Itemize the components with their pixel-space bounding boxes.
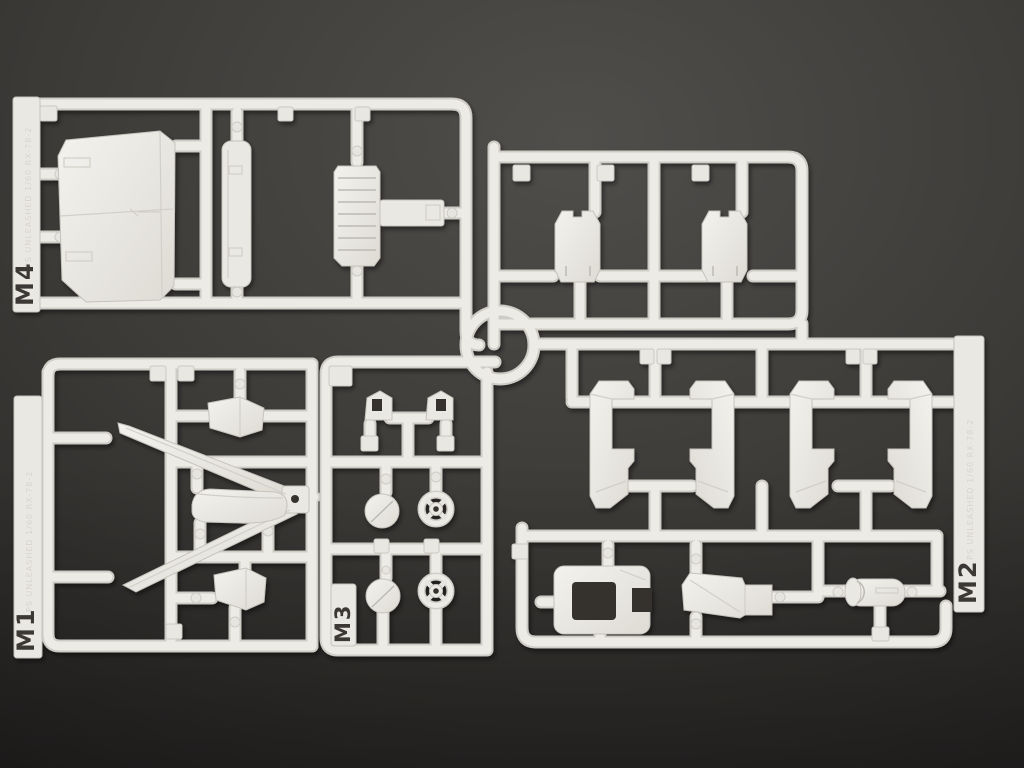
part-round-cap-1 (365, 494, 399, 528)
m2-label: M2 (954, 559, 982, 604)
part-ankle-guard-1 (555, 211, 600, 282)
part-armor-strip (222, 141, 251, 287)
part-curved-armor-cover (192, 489, 287, 523)
m4-molded-text: PS UNLEASHED 1/60 RX-78-2 (24, 127, 33, 268)
part-round-cap-2 (366, 579, 400, 613)
m1-label: M1 (12, 607, 40, 652)
m4-label: M4 (11, 261, 39, 306)
part-ankle-guard-2 (702, 211, 747, 282)
m3-label: M3 (331, 603, 355, 643)
m1-molded-text: PS UNLEASHED 1/60 RX-78-2 (25, 471, 34, 612)
part-backpack-plate (58, 131, 175, 302)
m2-molded-text: PS UNLEASHED 1/60 RX-78-2 (966, 419, 975, 560)
part-cylinder-thruster (845, 578, 905, 606)
part-frame-collar (554, 566, 652, 634)
photo-of-model-kit-sprues: PS UNLEASHED 1/60 RX-78-2 M4 PS UNLEASHE… (0, 0, 1024, 768)
sprue-photo-canvas: PS UNLEASHED 1/60 RX-78-2 M4 PS UNLEASHE… (0, 0, 1024, 768)
